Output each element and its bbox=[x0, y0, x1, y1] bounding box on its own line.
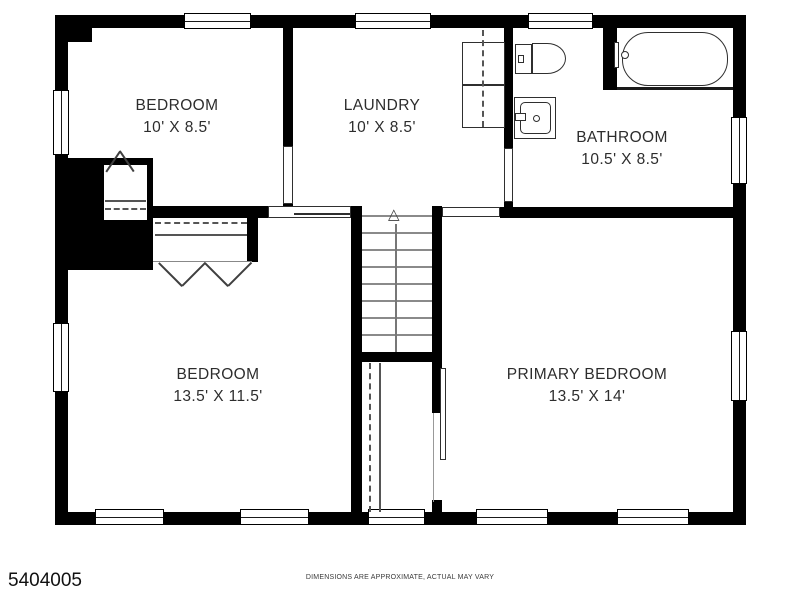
closet-shelf-line bbox=[105, 200, 146, 202]
stairs-up-arrow-icon: △ bbox=[388, 207, 400, 222]
closet-rod-line bbox=[105, 208, 146, 210]
room-name: BEDROOM bbox=[173, 364, 262, 386]
room-label-bedroom-2: BEDROOM 13.5' X 11.5' bbox=[173, 364, 262, 408]
door-leaf bbox=[440, 368, 446, 460]
window bbox=[355, 13, 431, 29]
closet-shelf-line bbox=[155, 234, 247, 236]
closet-rod-line bbox=[369, 363, 371, 512]
bifold-door-line bbox=[158, 262, 182, 286]
wall bbox=[68, 28, 92, 42]
wall bbox=[733, 15, 746, 525]
window bbox=[53, 323, 69, 392]
small-closet bbox=[104, 165, 147, 220]
room-name: BEDROOM bbox=[136, 95, 219, 117]
floor-plan: △ BEDROOM 10' X 8.5' LAUNDRY 10' X 8.5' … bbox=[0, 0, 800, 600]
window bbox=[53, 90, 69, 155]
window bbox=[476, 509, 548, 525]
window bbox=[95, 509, 164, 525]
toilet-flush-button bbox=[518, 55, 524, 63]
tub-ledge-line bbox=[617, 87, 733, 90]
appliance-fold-line bbox=[482, 30, 484, 127]
window bbox=[368, 509, 425, 525]
wall bbox=[247, 215, 258, 262]
room-label-bathroom: BATHROOM 10.5' X 8.5' bbox=[576, 127, 668, 171]
closet-rod-line bbox=[155, 222, 247, 224]
sink-drain bbox=[533, 115, 540, 122]
door-leaf bbox=[294, 213, 350, 215]
bifold-door-line bbox=[181, 262, 205, 286]
room-label-laundry: LAUNDRY 10' X 8.5' bbox=[344, 95, 421, 139]
window bbox=[184, 13, 251, 29]
wall bbox=[283, 28, 293, 148]
bathtub-faucet bbox=[614, 42, 619, 68]
window bbox=[240, 509, 309, 525]
room-name: LAUNDRY bbox=[344, 95, 421, 117]
room-dimensions: 13.5' X 14' bbox=[507, 386, 667, 408]
door-opening bbox=[442, 207, 500, 217]
room-dimensions: 10.5' X 8.5' bbox=[576, 149, 668, 171]
room-label-primary-bedroom: PRIMARY BEDROOM 13.5' X 14' bbox=[507, 364, 667, 408]
stair-center-line bbox=[395, 224, 397, 352]
room-dimensions: 13.5' X 11.5' bbox=[173, 386, 262, 408]
door-opening bbox=[283, 146, 293, 204]
window bbox=[528, 13, 593, 29]
window bbox=[617, 509, 689, 525]
opening-line bbox=[433, 413, 434, 502]
bathtub bbox=[622, 32, 728, 86]
bifold-door-line bbox=[227, 262, 251, 286]
closet-shelf-line bbox=[379, 363, 381, 512]
room-dimensions: 10' X 8.5' bbox=[136, 117, 219, 139]
window bbox=[731, 331, 747, 401]
room-dimensions: 10' X 8.5' bbox=[344, 117, 421, 139]
room-label-bedroom-1: BEDROOM 10' X 8.5' bbox=[136, 95, 219, 139]
bifold-door-line bbox=[204, 262, 228, 286]
closet-opening-line bbox=[153, 261, 252, 262]
window bbox=[731, 117, 747, 184]
sink-faucet bbox=[515, 113, 526, 121]
wall bbox=[500, 207, 733, 218]
room-name: BATHROOM bbox=[576, 127, 668, 149]
bathtub-faucet-knob bbox=[621, 51, 629, 59]
room-name: PRIMARY BEDROOM bbox=[507, 364, 667, 386]
wall bbox=[504, 28, 513, 150]
door-opening bbox=[268, 206, 351, 218]
wall bbox=[351, 352, 442, 362]
toilet-bowl bbox=[532, 43, 566, 74]
disclaimer-text: DIMENSIONS ARE APPROXIMATE, ACTUAL MAY V… bbox=[0, 574, 800, 581]
door-opening bbox=[504, 148, 513, 202]
